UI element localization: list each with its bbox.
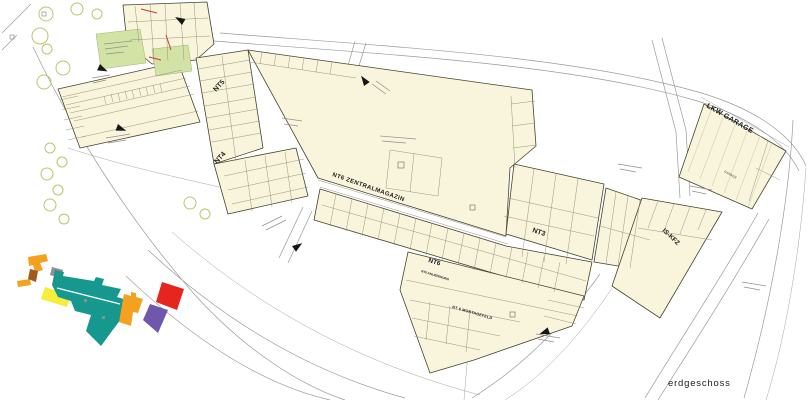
building-nt5 [196,50,263,164]
green-patch-1 [96,29,146,69]
survey-marks [10,12,46,39]
building-nt3 [506,164,604,260]
floor-level-label: erdgeschoss [668,378,731,389]
key-central-band [52,270,127,346]
key-is-kfz [143,304,168,333]
building-left-complex-workshop [58,62,200,148]
key-plan [17,254,184,346]
key-left-bar [17,279,31,287]
site-plan-canvas: NT5 NT4 NT6 ZENTRALMAGAZIN NT3 NT6 NT6 A… [0,0,809,400]
key-east-block [119,292,143,326]
green-patch-2 [152,45,192,76]
building-zentralmagazin-hall [248,50,536,236]
site-plan-drawing: NT5 NT4 NT6 ZENTRALMAGAZIN NT3 NT6 NT6 A… [0,0,809,400]
key-core-dot [102,316,105,319]
key-lkw-garage [156,282,184,310]
key-core-dot [84,299,87,302]
